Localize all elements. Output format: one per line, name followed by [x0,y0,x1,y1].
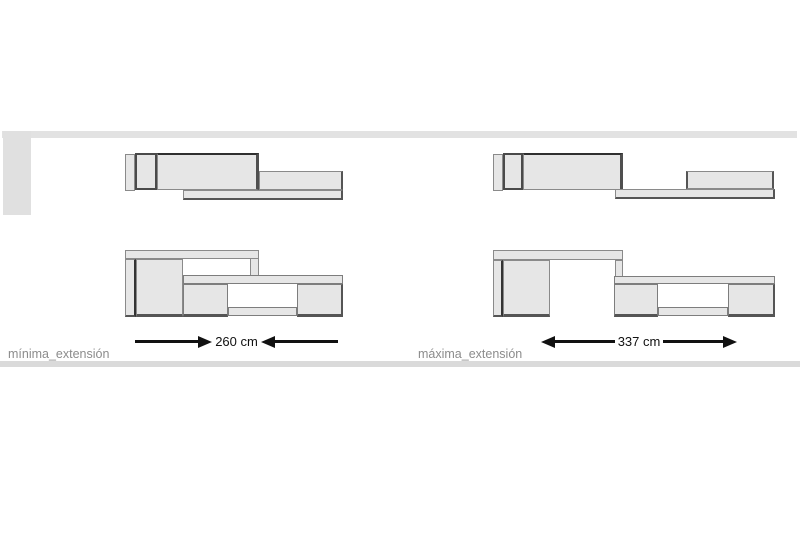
maxima-bench-board [614,276,775,284]
maxima-lower-left-cabinet [503,260,550,317]
minima-upper-door-panel [135,153,157,190]
minima-caption: mínima_extensión [8,347,109,361]
dimension-line [135,340,198,343]
maxima-dimension-arrow: 337 cm [541,334,737,349]
maxima-upper-thin-shelf [615,189,775,199]
dimension-line [663,340,723,343]
maxima-bench-right-cabinet [728,284,775,317]
minima-bench-left-cabinet [183,284,228,317]
maxima-lower-side-panel [493,260,503,317]
minima-upper-shelf-box [259,171,343,190]
bottom-divider-band [0,361,800,367]
top-divider-band [2,131,797,138]
maxima-upper-cabinet [523,153,623,190]
maxima-dimension-value: 337 cm [615,334,664,349]
left-margin-bar [3,131,31,215]
minima-lower-top-board [125,250,259,259]
maxima-upper-door-panel [503,153,523,190]
maxima-bench-bottom-shelf [658,307,728,316]
minima-bench-bottom-shelf [228,307,297,316]
maxima-caption: máxima_extensión [418,347,522,361]
minima-bench-board [183,275,343,284]
maxima-bench-left-cabinet [614,284,658,317]
arrowhead-right-icon [198,336,212,348]
minima-upper-cabinet [157,153,259,190]
minima-upper-side-panel [125,154,135,191]
minima-lower-side-panel [125,259,136,317]
catalog-diagram-page: 260 cm mínima_extensión 337 cm máxi [0,0,800,533]
minima-lower-left-cabinet [136,259,183,317]
maxima-upper-side-panel [493,154,503,191]
dimension-line [275,340,338,343]
minima-bench-right-cabinet [297,284,343,317]
minima-lower-right-support [250,258,259,276]
maxima-lower-top-board [493,250,623,260]
minima-dimension-arrow: 260 cm [135,334,338,349]
minima-upper-thin-shelf [183,190,343,200]
dimension-line [555,340,615,343]
arrowhead-left-icon [541,336,555,348]
arrowhead-left-icon [261,336,275,348]
maxima-upper-shelf-box [686,171,774,189]
arrowhead-right-icon [723,336,737,348]
minima-dimension-value: 260 cm [212,334,261,349]
maxima-lower-right-support [615,260,623,277]
